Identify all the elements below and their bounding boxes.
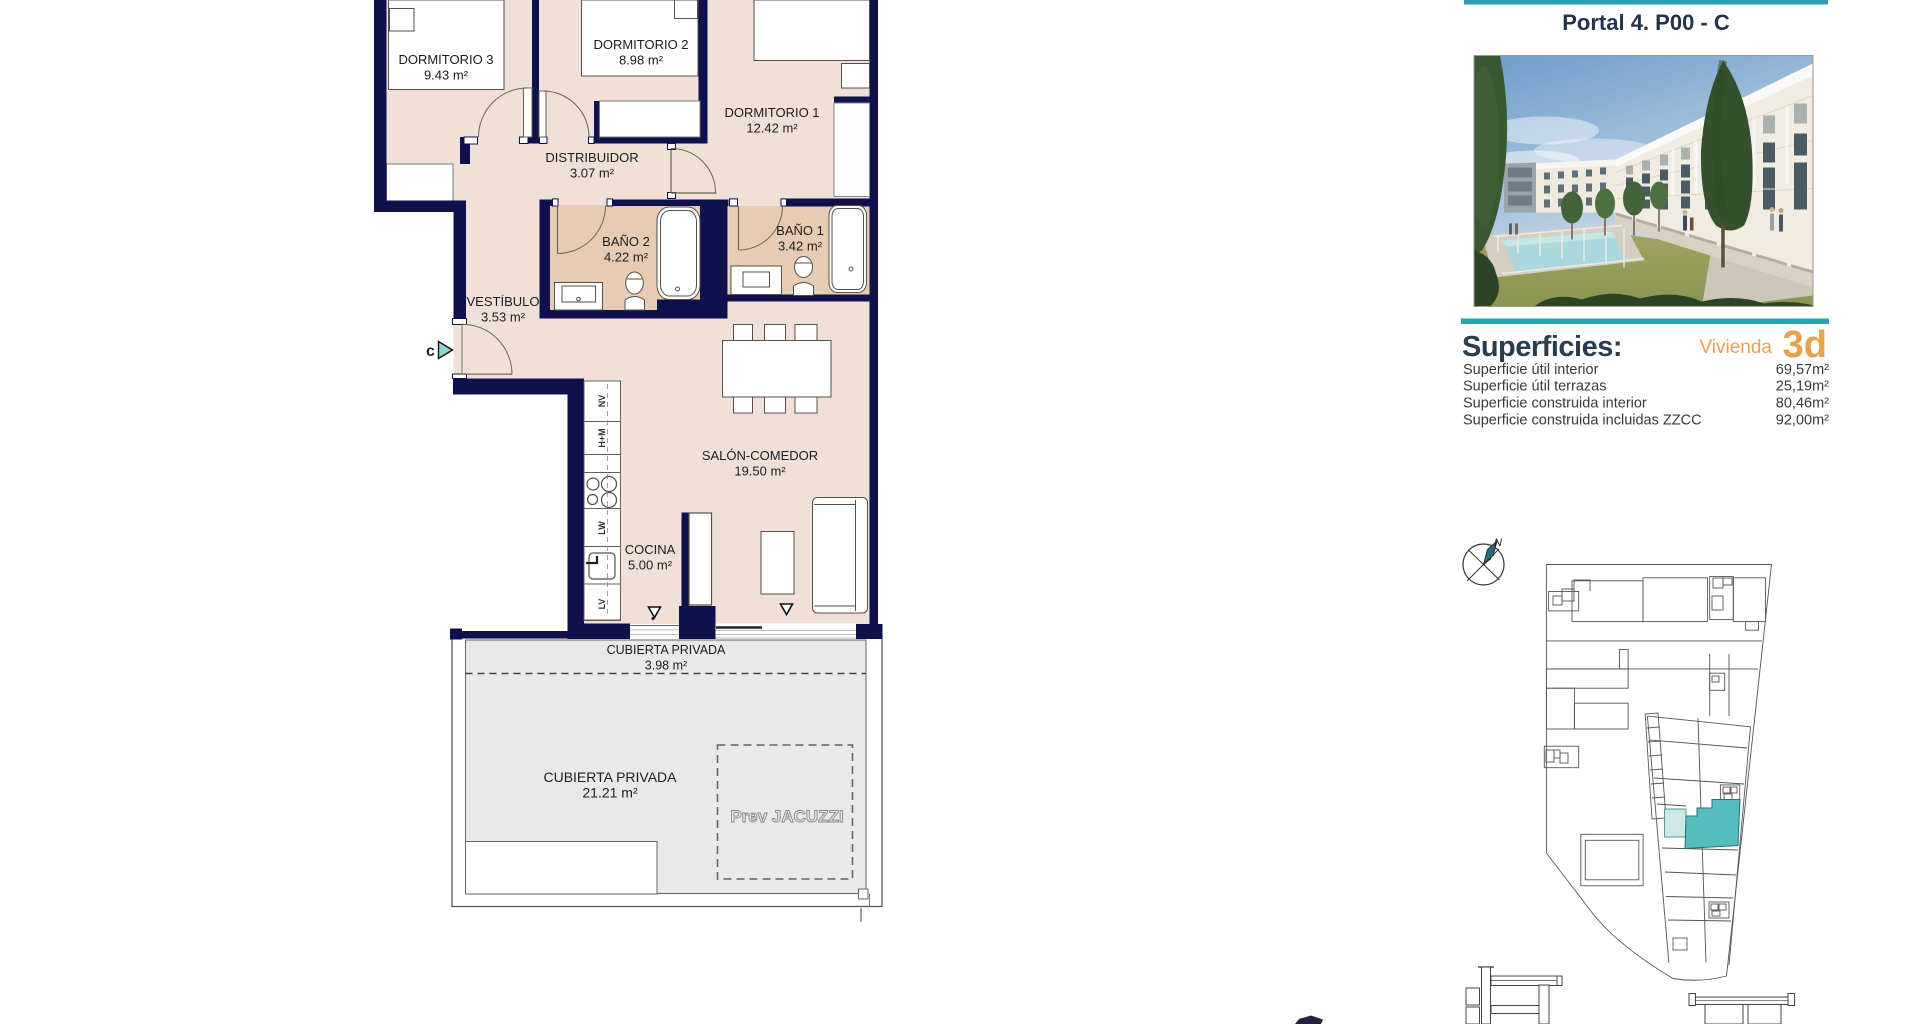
- svg-text:5.00 m²: 5.00 m²: [628, 558, 673, 573]
- svg-text:69,57m²: 69,57m²: [1776, 362, 1829, 378]
- svg-text:92,00m²: 92,00m²: [1776, 413, 1829, 429]
- svg-text:Superficie útil terrazas: Superficie útil terrazas: [1463, 379, 1606, 395]
- svg-text:19.50 m²: 19.50 m²: [734, 464, 786, 479]
- svg-text:3.07 m²: 3.07 m²: [570, 166, 615, 181]
- svg-text:Prev JACUZZI: Prev JACUZZI: [730, 807, 843, 826]
- svg-text:12.42 m²: 12.42 m²: [746, 121, 798, 136]
- svg-text:21.21 m²: 21.21 m²: [582, 785, 638, 801]
- svg-text:DISTRIBUIDOR: DISTRIBUIDOR: [545, 150, 638, 165]
- svg-text:COCINA: COCINA: [625, 542, 676, 557]
- svg-text:Portal 4. P00 - C: Portal 4. P00 - C: [1562, 10, 1730, 35]
- svg-text:SALÓN-COMEDOR: SALÓN-COMEDOR: [702, 448, 818, 463]
- svg-text:BAÑO 2: BAÑO 2: [602, 234, 650, 249]
- svg-text:Vivienda: Vivienda: [1699, 337, 1772, 358]
- svg-text:Superficie construida incluida: Superficie construida incluidas ZZCC: [1463, 413, 1702, 429]
- svg-text:8.98 m²: 8.98 m²: [619, 53, 664, 68]
- svg-text:3.42 m²: 3.42 m²: [778, 239, 823, 254]
- svg-text:VESTÍBULO: VESTÍBULO: [467, 294, 540, 309]
- svg-text:DORMITORIO 2: DORMITORIO 2: [593, 37, 688, 52]
- svg-text:BAÑO 1: BAÑO 1: [776, 223, 824, 238]
- svg-text:Superficie útil interior: Superficie útil interior: [1463, 362, 1599, 378]
- svg-text:DORMITORIO 3: DORMITORIO 3: [398, 52, 493, 67]
- svg-text:9.43 m²: 9.43 m²: [424, 68, 469, 83]
- svg-text:LW: LW: [597, 521, 607, 535]
- svg-text:CUBIERTA PRIVADA: CUBIERTA PRIVADA: [543, 769, 677, 785]
- svg-text:Superficies:: Superficies:: [1462, 331, 1622, 363]
- svg-text:3.53 m²: 3.53 m²: [481, 310, 526, 325]
- svg-text:LV: LV: [597, 599, 607, 610]
- svg-text:25,19m²: 25,19m²: [1776, 379, 1829, 395]
- svg-text:N: N: [1494, 537, 1502, 549]
- svg-text:NV: NV: [597, 395, 607, 408]
- svg-text:4.22 m²: 4.22 m²: [604, 250, 649, 265]
- svg-text:DORMITORIO 1: DORMITORIO 1: [724, 105, 819, 120]
- svg-text:3.98 m²: 3.98 m²: [645, 659, 687, 673]
- svg-text:c: c: [426, 343, 435, 360]
- svg-text:3d: 3d: [1783, 324, 1827, 366]
- svg-text:Superficie construida interior: Superficie construida interior: [1463, 396, 1647, 412]
- svg-text:80,46m²: 80,46m²: [1776, 396, 1829, 412]
- svg-text:CUBIERTA PRIVADA: CUBIERTA PRIVADA: [607, 643, 726, 657]
- svg-text:H+M: H+M: [597, 428, 607, 447]
